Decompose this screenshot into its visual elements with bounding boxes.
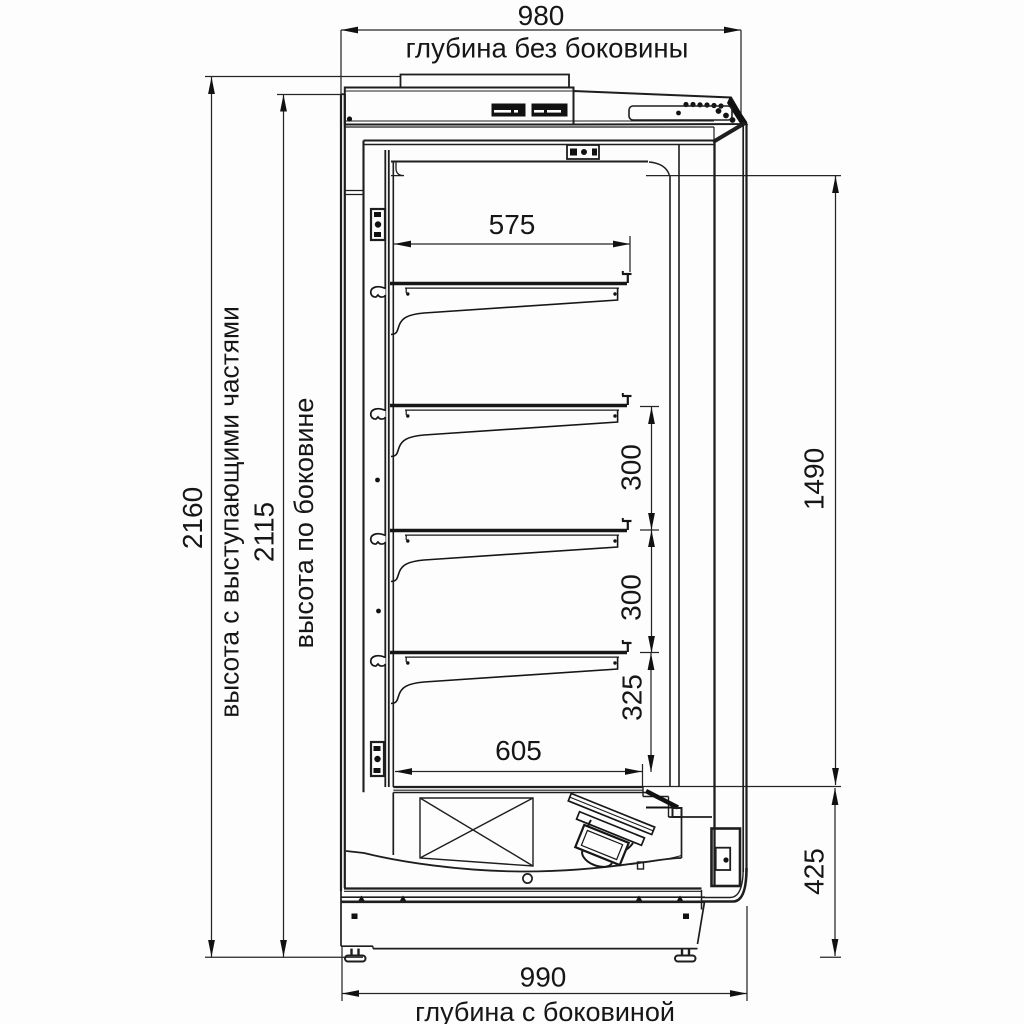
- svg-text:2115: 2115: [249, 502, 280, 562]
- svg-text:1490: 1490: [798, 448, 829, 510]
- svg-text:990: 990: [520, 962, 567, 993]
- svg-text:605: 605: [495, 735, 542, 766]
- svg-text:300: 300: [616, 444, 647, 491]
- svg-text:300: 300: [616, 574, 647, 621]
- svg-text:высота по боковине: высота по боковине: [289, 398, 319, 649]
- svg-text:425: 425: [799, 848, 830, 895]
- svg-text:980: 980: [518, 0, 565, 31]
- svg-text:325: 325: [617, 674, 648, 721]
- svg-text:2160: 2160: [177, 487, 208, 549]
- svg-text:глубина без боковины: глубина без боковины: [406, 33, 689, 64]
- svg-text:глубина с боковиной: глубина с боковиной: [415, 997, 675, 1024]
- svg-text:высота с выступающими частями: высота с выступающими частями: [215, 306, 245, 718]
- svg-text:575: 575: [489, 209, 536, 240]
